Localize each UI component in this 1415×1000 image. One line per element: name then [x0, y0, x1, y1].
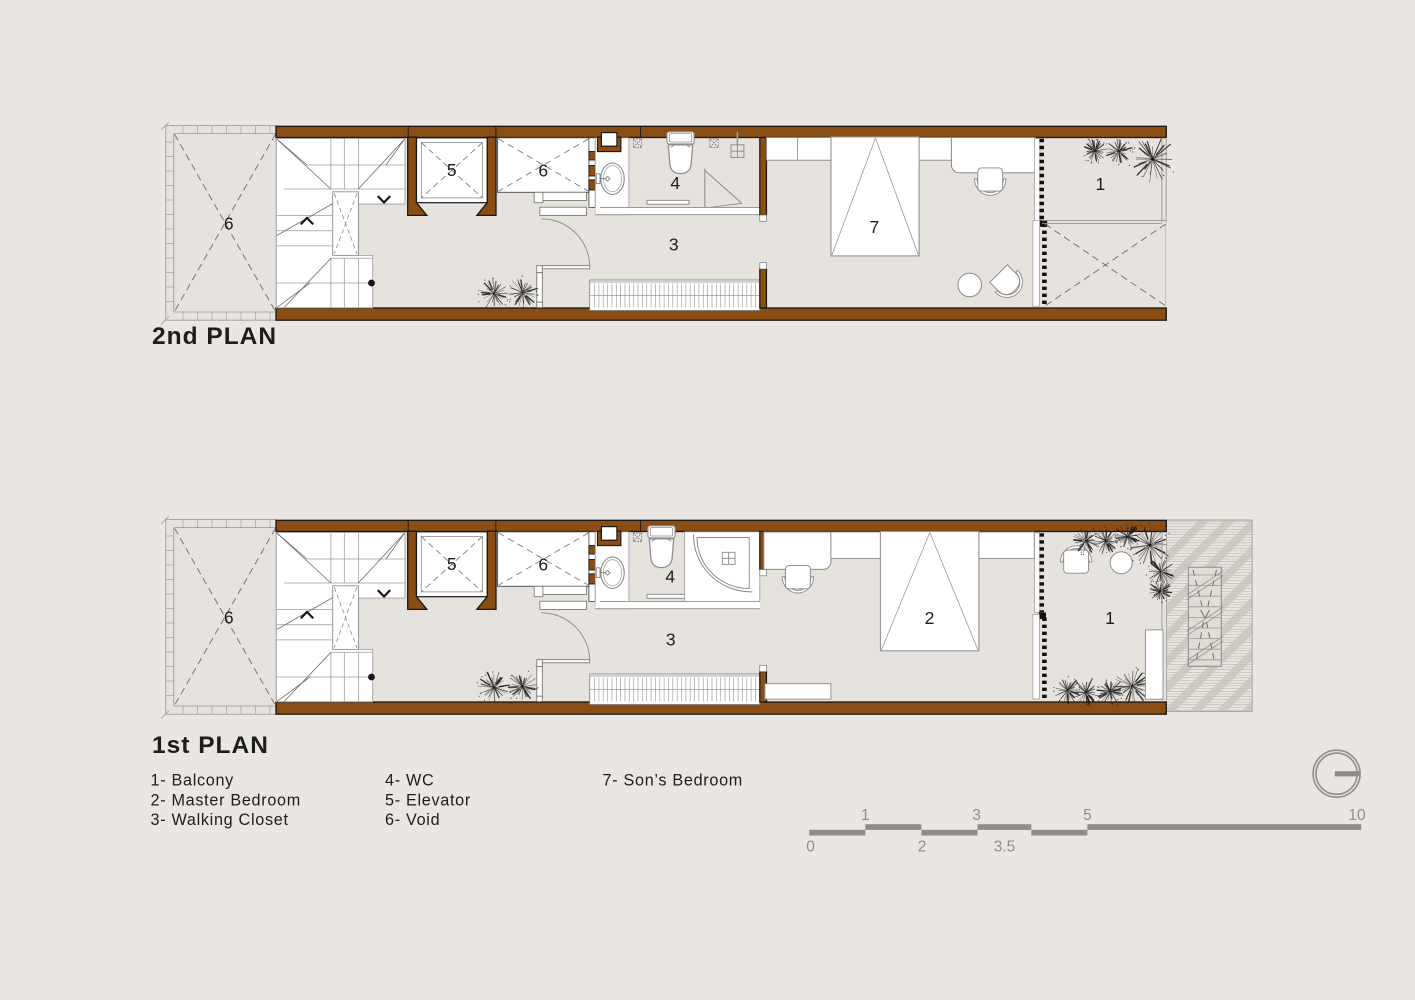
svg-text:4: 4	[670, 173, 680, 193]
svg-text:3.5: 3.5	[994, 839, 1016, 856]
svg-text:6- Void: 6- Void	[385, 811, 440, 829]
svg-text:3: 3	[972, 807, 981, 824]
svg-text:6: 6	[224, 608, 234, 628]
svg-text:1st PLAN: 1st PLAN	[152, 732, 269, 759]
svg-text:3- Walking Closet: 3- Walking Closet	[151, 811, 289, 829]
svg-text:6: 6	[538, 161, 548, 181]
svg-text:5: 5	[1083, 807, 1092, 824]
svg-text:7: 7	[869, 217, 879, 237]
svg-text:3: 3	[669, 235, 679, 255]
svg-text:1: 1	[1105, 608, 1115, 628]
svg-text:5: 5	[447, 554, 457, 574]
svg-text:0: 0	[806, 839, 815, 856]
svg-text:4: 4	[665, 567, 675, 587]
svg-text:1: 1	[861, 807, 870, 824]
svg-text:2nd PLAN: 2nd PLAN	[152, 323, 277, 350]
svg-text:1- Balcony: 1- Balcony	[151, 772, 235, 790]
svg-text:7- Son’s Bedroom: 7- Son’s Bedroom	[603, 772, 743, 790]
svg-text:6: 6	[224, 214, 234, 234]
svg-text:10: 10	[1348, 807, 1366, 824]
svg-text:2: 2	[925, 608, 935, 628]
svg-text:5- Elevator: 5- Elevator	[385, 791, 471, 809]
svg-text:1: 1	[1095, 174, 1105, 194]
svg-text:5: 5	[447, 160, 457, 180]
svg-text:3: 3	[666, 630, 676, 650]
svg-text:2- Master Bedroom: 2- Master Bedroom	[151, 791, 301, 809]
svg-text:2: 2	[918, 839, 927, 856]
svg-text:4- WC: 4- WC	[385, 772, 434, 790]
svg-text:6: 6	[538, 555, 548, 575]
